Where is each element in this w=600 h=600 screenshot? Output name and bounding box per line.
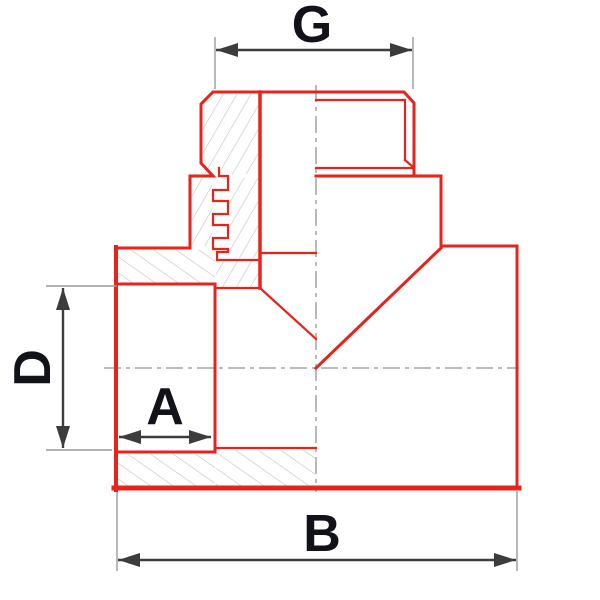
drawing-canvas: G D A B bbox=[0, 0, 600, 600]
a-label: A bbox=[146, 378, 184, 436]
b-arrowhead-left bbox=[118, 553, 140, 567]
hatch-thread-wall bbox=[203, 94, 258, 174]
hatch-hex-right bbox=[229, 178, 258, 258]
a-arrowhead-left bbox=[119, 430, 141, 444]
hatch-socket-bottom-wall bbox=[118, 454, 215, 486]
hatch-shoulder-block bbox=[216, 261, 259, 287]
d-arrowhead-top bbox=[56, 288, 70, 310]
hatch-body-bottom-wall bbox=[216, 450, 315, 486]
hatch-socket-top-wall bbox=[118, 250, 215, 283]
g-arrowhead-right bbox=[390, 43, 412, 57]
b-label: B bbox=[303, 505, 341, 563]
hatch-hex-left bbox=[192, 178, 212, 246]
dimension-g: G bbox=[215, 0, 413, 89]
d-arrowhead-bottom bbox=[56, 426, 70, 448]
g-arrowhead-left bbox=[216, 43, 238, 57]
a-arrowhead-right bbox=[189, 430, 211, 444]
dimension-b: B bbox=[117, 491, 517, 571]
outer-cone-edge bbox=[316, 248, 441, 368]
fitting-drawing: G D A B bbox=[0, 0, 600, 600]
b-arrowhead-right bbox=[494, 553, 516, 567]
dimension-d: D bbox=[4, 286, 117, 450]
dimension-a: A bbox=[119, 378, 211, 444]
d-label: D bbox=[4, 349, 62, 387]
inner-cone-edge bbox=[260, 288, 316, 339]
g-label: G bbox=[292, 0, 332, 54]
thread-end-chamfer bbox=[405, 160, 413, 167]
